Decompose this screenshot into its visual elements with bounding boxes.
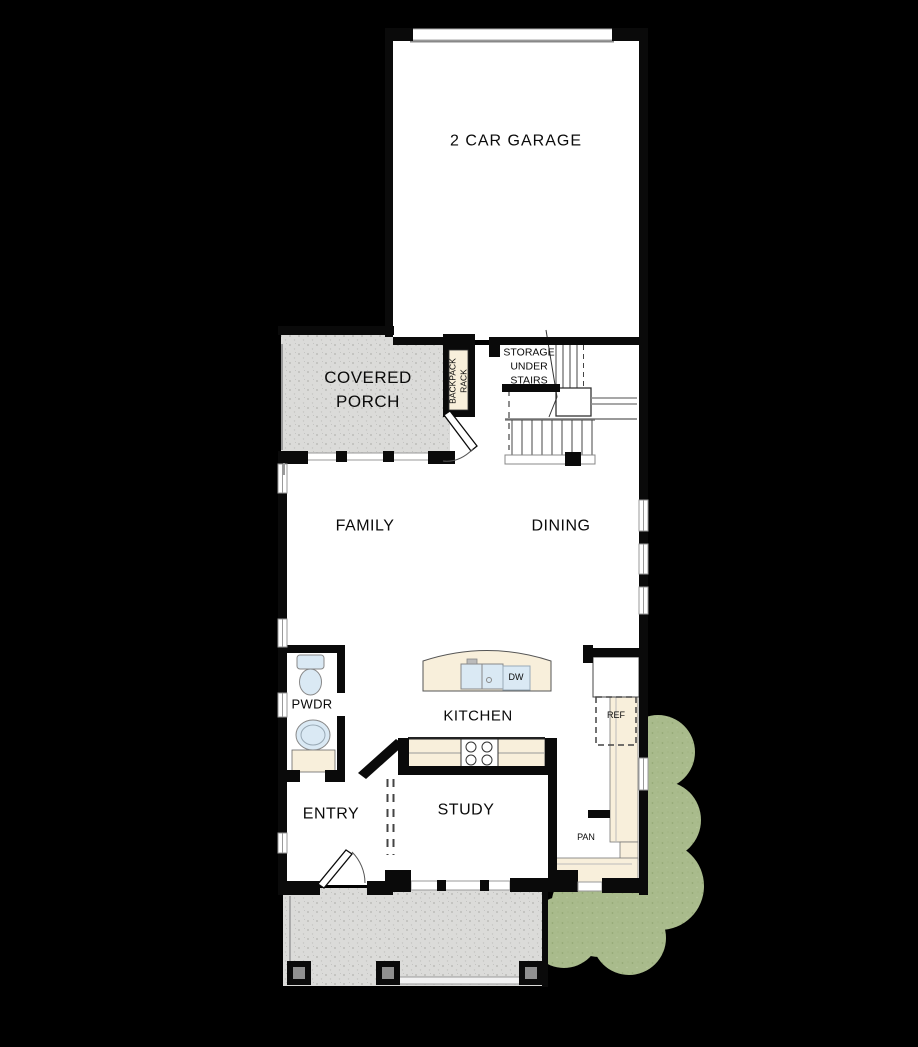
covered-porch-label: COVERED PORCH [303, 366, 433, 414]
study-label: STUDY [438, 801, 495, 822]
pwdr-label: PWDR [292, 697, 333, 714]
dining-label: DINING [532, 517, 591, 538]
pwdr-window [278, 693, 287, 717]
kitchen-sink-icon [461, 659, 503, 689]
entry-window [278, 833, 287, 853]
toilet-icon [297, 655, 324, 695]
covered-porch-edge [281, 344, 283, 450]
cooktop-icon [461, 739, 498, 767]
floor-plan: 2 CAR GARAGE COVERED PORCH STORAGE UNDER… [0, 0, 918, 1047]
dishwasher-label: DW [509, 672, 524, 684]
garage-door [410, 29, 614, 42]
vanity-counter [292, 750, 335, 772]
floor-plan-drawing [0, 0, 918, 1047]
dining-window-3 [639, 587, 648, 614]
family-window-left [278, 464, 287, 493]
vanity-sink-icon [296, 720, 330, 750]
pantry-window [639, 758, 648, 790]
refrigerator-label: REF [607, 710, 625, 722]
drop-zone-cabinet [593, 657, 639, 697]
porch-column [519, 961, 543, 985]
dining-window-2 [639, 544, 648, 574]
family-label: FAMILY [336, 517, 395, 538]
dining-window-1 [639, 500, 648, 531]
porch-column [287, 961, 311, 985]
kitchen-label: KITCHEN [443, 706, 512, 726]
entry-label: ENTRY [303, 805, 359, 826]
cooktop-counter [408, 737, 545, 767]
kitchen-island [423, 651, 551, 692]
garage-label: 2 CAR GARAGE [450, 132, 582, 153]
front-porch-floor [283, 888, 545, 986]
family-window-left-2 [278, 619, 287, 647]
backpack-rack-label: BACKPACK RACK [447, 349, 468, 413]
porch-step [397, 977, 525, 984]
pantry-label: PAN [577, 832, 595, 844]
storage-label: STORAGE UNDER STAIRS [493, 346, 565, 389]
porch-column [376, 961, 400, 985]
